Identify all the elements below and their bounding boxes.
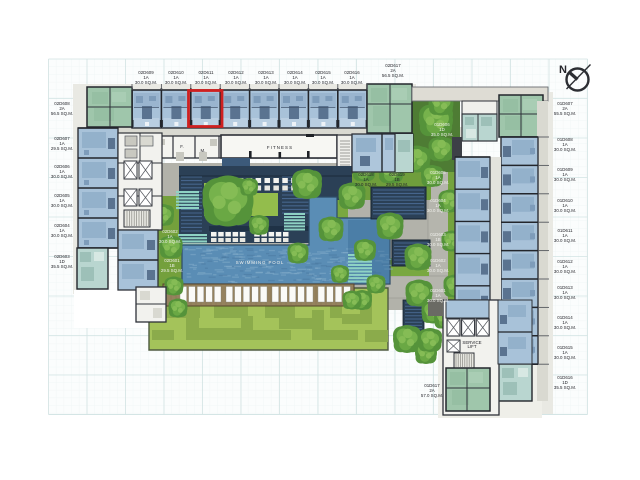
svg-text:30.0 SQ.M.: 30.0 SQ.M.: [135, 80, 157, 85]
svg-text:30.0 SQ.M.: 30.0 SQ.M.: [427, 268, 449, 273]
svg-text:30.0 SQ.M.: 30.0 SQ.M.: [255, 80, 277, 85]
svg-text:30.0 SQ.M.: 30.0 SQ.M.: [554, 355, 576, 360]
svg-text:30.0 SQ.M.: 30.0 SQ.M.: [195, 80, 217, 85]
svg-text:SWIMMING POOL: SWIMMING POOL: [236, 260, 285, 265]
svg-text:30.0 SQ.M.: 30.0 SQ.M.: [427, 242, 449, 247]
svg-text:30.0 SQ.M.: 30.0 SQ.M.: [427, 180, 449, 185]
svg-text:M.: M.: [201, 148, 206, 153]
svg-text:FITNESS: FITNESS: [267, 145, 293, 150]
svg-text:30.0 SQ.M.: 30.0 SQ.M.: [554, 325, 576, 330]
svg-text:30.0 SQ.M.: 30.0 SQ.M.: [554, 238, 576, 243]
svg-text:30.0 SQ.M.: 30.0 SQ.M.: [225, 80, 247, 85]
svg-text:30.0 SQ.M.: 30.0 SQ.M.: [427, 208, 449, 213]
svg-text:29.5 SQ.M.: 29.5 SQ.M.: [161, 268, 183, 273]
svg-text:30.0 SQ.M.: 30.0 SQ.M.: [284, 80, 306, 85]
svg-text:55.5 SQ.M.: 55.5 SQ.M.: [554, 111, 576, 116]
svg-text:35.5 SQ.M.: 35.5 SQ.M.: [51, 264, 73, 269]
svg-text:35.5 SQ.M.: 35.5 SQ.M.: [554, 385, 576, 390]
svg-text:30.0 SQ.M.: 30.0 SQ.M.: [341, 80, 363, 85]
svg-text:N: N: [559, 64, 567, 76]
svg-text:F.: F.: [180, 144, 183, 149]
svg-text:30.0 SQ.M.: 30.0 SQ.M.: [312, 80, 334, 85]
svg-text:30.0 SQ.M.: 30.0 SQ.M.: [554, 177, 576, 182]
svg-text:56.5 SQ.M.: 56.5 SQ.M.: [382, 73, 404, 78]
svg-text:30.0 SQ.M.: 30.0 SQ.M.: [554, 295, 576, 300]
svg-text:30.0 SQ.M.: 30.0 SQ.M.: [165, 80, 187, 85]
svg-text:LIFT: LIFT: [467, 344, 476, 349]
svg-text:30.0 SQ.M.: 30.0 SQ.M.: [355, 182, 377, 187]
svg-text:30.0 SQ.M.: 30.0 SQ.M.: [51, 233, 73, 238]
svg-text:29.5 SQ.M.: 29.5 SQ.M.: [51, 146, 73, 151]
svg-text:57.0 SQ.M.: 57.0 SQ.M.: [421, 393, 443, 398]
svg-text:30.0 SQ.M.: 30.0 SQ.M.: [159, 239, 181, 244]
svg-text:30.0 SQ.M.: 30.0 SQ.M.: [51, 203, 73, 208]
svg-text:30.0 SQ.M.: 30.0 SQ.M.: [51, 174, 73, 179]
svg-text:30.0 SQ.M.: 30.0 SQ.M.: [554, 147, 576, 152]
svg-text:29.5 SQ.M.: 29.5 SQ.M.: [386, 182, 408, 187]
svg-text:30.0 SQ.M.: 30.0 SQ.M.: [554, 269, 576, 274]
svg-text:35.0 SQ.M.: 35.0 SQ.M.: [431, 132, 453, 137]
svg-text:56.5 SQ.M.: 56.5 SQ.M.: [51, 111, 73, 116]
svg-text:30.0 SQ.M.: 30.0 SQ.M.: [554, 208, 576, 213]
svg-text:30.0 SQ.M.: 30.0 SQ.M.: [427, 298, 449, 303]
